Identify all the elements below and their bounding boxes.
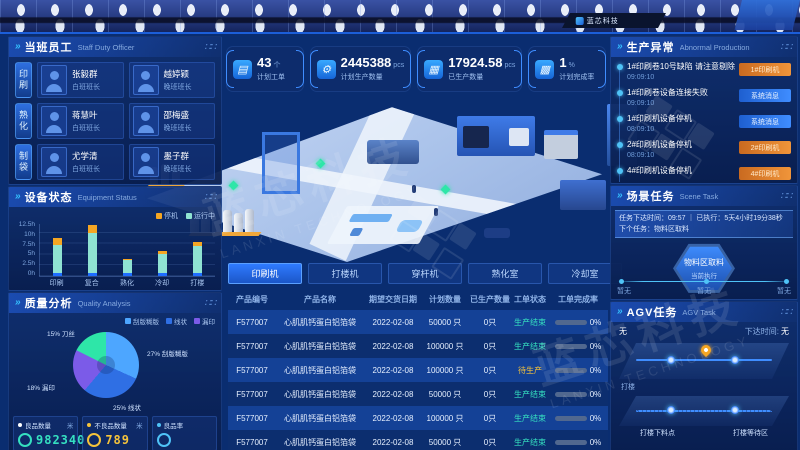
timeline-dot [619, 279, 624, 284]
avatar [41, 147, 67, 177]
staff-name: 越婷颖 [164, 68, 192, 80]
stat-dot [87, 423, 91, 427]
staff-card: 张毅群 白班班长 [37, 62, 124, 98]
machine-3d [560, 180, 606, 210]
abnormal-production-panel: 生产异常 Abnormal Production 1#印刷卷10号缺陷 请注意剔… [610, 36, 798, 184]
legend-swatch [194, 318, 200, 324]
gear-icon: ⚙ [317, 60, 336, 79]
abnormal-item[interactable]: 2#印刷机设备停机 08:09:10 2#印刷机 [627, 139, 793, 164]
staff-grid: 印刷 张毅群 白班班长 越婷颖 晚班班长 熟化 蒋慧叶 白班班长 [9, 57, 221, 185]
avatar [41, 65, 67, 95]
factory-photo-machine [735, 0, 800, 30]
pie-chart-legend: 刮版糊版 线状 漏印 [9, 313, 221, 326]
table-row[interactable]: F577007心肌肌钙蛋白铝箔袋2022-02-08100000 只0只待生产 … [228, 358, 608, 382]
yield-rate-card: 良品率 [152, 416, 217, 450]
agv-status-row: 无 下达时间:无 [611, 322, 797, 339]
station-label: 打楼下料点 [640, 428, 675, 438]
scene-task-panel: 场景任务 Scene Task 任务下达时间：09:57 ｜ 已执行：5天4小时… [610, 185, 798, 300]
avatar [133, 106, 159, 136]
progress-bar [555, 392, 587, 397]
bar-熟化[interactable] [123, 224, 132, 276]
issue-time-label: 下达时间: [745, 327, 779, 336]
tab-dalou-machine[interactable]: 打楼机 [308, 263, 382, 284]
progress-bar [555, 440, 587, 445]
staff-name: 张毅群 [72, 68, 100, 80]
agv-task-header: AGV任务 AGV Task [611, 302, 797, 322]
quality-stats: 良品数量 米 982340 不良品数量 米 789 良品率 [9, 414, 221, 450]
good-qty-card: 良品数量 米 982340 [13, 416, 78, 450]
target-ring-icon [87, 433, 101, 447]
panel-subtitle: Abnormal Production [680, 43, 781, 52]
staff-card: 邵梅盛 晚班班长 [129, 103, 216, 139]
boxes-icon: ▦ [424, 60, 443, 79]
clipboard-icon: ▤ [233, 60, 252, 79]
boxes-percent-icon: ▩ [535, 60, 554, 79]
agv-status-value: 无 [619, 326, 627, 337]
table-row[interactable]: F577007心肌肌钙蛋白铝箔袋2022-02-0850000 只0只生产结束 … [228, 310, 608, 334]
equipment-status-panel: 设备状态 Equipment Status 停机 运行中 12.5h 10h 7… [8, 186, 222, 291]
table-row[interactable]: F577007心肌肌钙蛋白铝箔袋2022-02-08100000 只0只生产结束… [228, 334, 608, 358]
process-tag: 制袋 [15, 144, 32, 180]
kpi-completion-rate: ▩ 1% 计划完成率 [528, 46, 606, 92]
quality-panel-header: 质量分析 Quality Analysis [9, 293, 221, 313]
process-tag: 熟化 [15, 103, 32, 139]
task-name: 物料区取料 [684, 257, 724, 268]
track-dot [731, 356, 739, 364]
pie[interactable] [73, 332, 139, 398]
panel-subtitle: Equipment Status [78, 193, 205, 202]
bar-打楼[interactable] [193, 224, 202, 276]
bar-复合[interactable] [88, 224, 97, 276]
agv-location-pin-icon [699, 343, 713, 357]
kpi-row: ▤ 43个 计划工单 ⚙ 2445388pcs 计划生产数量 ▦ 17924.5… [226, 46, 606, 92]
roller-machine-3d [367, 140, 419, 164]
timeline-dot [704, 279, 709, 284]
track-dot [731, 406, 739, 414]
panel-subtitle: Scene Task [680, 192, 781, 201]
brand-logo-icon [576, 17, 584, 25]
factory-photo-banner: 蓝芯科技 [0, 0, 800, 34]
printing-machine-3d [457, 116, 535, 156]
legend-swatch [166, 318, 172, 324]
staff-name: 尤学清 [72, 150, 100, 162]
bar-印刷[interactable] [53, 224, 62, 276]
legend-item[interactable]: 线状 [166, 316, 187, 326]
abnormal-list: 1#印刷卷10号缺陷 请注意剔除 09:09:10 1#印刷机 1#印刷卷设备连… [611, 57, 797, 184]
abnormal-panel-header: 生产异常 Abnormal Production [611, 37, 797, 57]
agv-task-panel: AGV任务 AGV Task 无 下达时间:无 打楼 打楼下料点 打楼等待区 [610, 301, 798, 450]
panel-title: 质量分析 [25, 295, 73, 311]
kpi-planned-qty: ⚙ 2445388pcs 计划生产数量 [310, 46, 412, 92]
machine-tag: 2#印刷机 [739, 141, 791, 154]
tab-rod-machine[interactable]: 穿杆机 [388, 263, 462, 284]
agv-route-label: 打楼 [611, 379, 797, 392]
task-timeline: 暂无 暂无 暂无 [617, 277, 791, 295]
avatar [133, 147, 159, 177]
check-ring-icon [18, 433, 32, 447]
worker-figure-3d [434, 208, 438, 216]
panel-menu-icon[interactable] [780, 191, 791, 202]
agv-vehicle-3d [484, 228, 510, 238]
legend-swatch [125, 318, 131, 324]
panel-menu-icon[interactable] [204, 298, 215, 309]
staff-panel-header: 当班员工 Staff Duty Officer [9, 37, 221, 57]
system-tag: 系统消息 [739, 89, 791, 102]
chevrons-icon [15, 192, 21, 202]
staff-row: 印刷 张毅群 白班班长 越婷颖 晚班班长 [15, 62, 215, 98]
chevrons-icon [15, 298, 21, 308]
chevrons-icon [617, 307, 623, 317]
machine-tag: 1#印刷机 [739, 63, 791, 76]
stat-dot [18, 423, 22, 427]
stat-dot [157, 423, 161, 427]
chevrons-icon [617, 42, 623, 52]
panel-title: AGV任务 [627, 304, 678, 320]
brand-logo: 蓝芯科技 [562, 13, 666, 28]
panel-subtitle: AGV Task [682, 308, 780, 317]
legend-item[interactable]: 漏印 [194, 316, 215, 326]
equipment-panel-header: 设备状态 Equipment Status [9, 187, 221, 207]
staff-card: 越婷颖 晚班班长 [129, 62, 216, 98]
timeline-dot [784, 279, 789, 284]
abnormal-item[interactable]: 4#印刷机设备停机 4#印刷机 [627, 165, 793, 184]
progress-bar [555, 344, 587, 349]
pie-label: 15% 刀丝 [47, 328, 75, 338]
process-tag: 印刷 [15, 62, 32, 98]
tab-printing-machine[interactable]: 印刷机 [228, 263, 302, 284]
machine-tabs: 印刷机 打楼机 穿杆机 熟化室 冷却室 [228, 263, 622, 284]
table-row[interactable]: F577007心肌肌钙蛋白铝箔袋2022-02-0850000 只0只生产结束 … [228, 430, 608, 450]
pie-label: 27% 刮版糊版 [147, 348, 188, 358]
staff-row: 制袋 尤学清 白班班长 墨子群 晚班班长 [15, 144, 215, 180]
chevrons-icon [617, 191, 623, 201]
avatar [133, 65, 159, 95]
station-label: 打楼等待区 [733, 428, 768, 438]
bar-冷却[interactable] [158, 224, 167, 276]
legend-swatch [156, 213, 162, 219]
tab-curing-room[interactable]: 熟化室 [468, 263, 542, 284]
progress-bar [555, 416, 587, 421]
progress-bar [555, 320, 587, 325]
panel-subtitle: Staff Duty Officer [78, 43, 205, 52]
worker-figure-3d [412, 185, 416, 193]
bar-chart-legend: 停机 运行中 [156, 211, 215, 221]
staff-panel: 当班员工 Staff Duty Officer 印刷 张毅群 白班班长 越婷颖 … [8, 36, 222, 185]
track-line [636, 359, 772, 361]
agv-track-current [619, 343, 789, 379]
good-qty-value: 982340 [36, 433, 85, 447]
panel-subtitle: Quality Analysis [78, 299, 205, 308]
legend-swatch [186, 213, 192, 219]
winder-machine-3d [544, 130, 578, 159]
agv-stations: 打楼下料点 打楼等待区 [611, 428, 797, 438]
staff-card: 尤学清 白班班长 [37, 144, 124, 180]
machine-tag: 4#印刷机 [739, 167, 791, 180]
panel-menu-icon[interactable] [780, 307, 791, 318]
staff-name: 墨子群 [164, 150, 192, 162]
track-line-dashed [636, 410, 772, 412]
task-info-bar: 任务下达时间：09:57 ｜ 已执行：5天4小时19分38秒 下个任务：物料区取… [615, 210, 793, 238]
quality-pie-chart: 15% 刀丝 27% 刮版糊版 18% 漏印 25% 线状 [9, 326, 221, 414]
frame-machine-3d [262, 132, 300, 194]
worksheet-table: 产品编号 产品名称 期望交货日期 计划数量 已生产数量 工单状态 工单完成率 F… [228, 288, 608, 450]
legend-item[interactable]: 刮版糊版 [125, 316, 159, 326]
staff-role: 晚班班长 [164, 82, 192, 92]
system-tag: 系统消息 [739, 115, 791, 128]
avatar [41, 106, 67, 136]
staff-name: 邵梅盛 [164, 109, 192, 121]
staff-role: 白班班长 [72, 123, 100, 133]
table-row[interactable]: F577007心肌肌钙蛋白铝箔袋2022-02-08100000 只0只生产结束… [228, 406, 608, 430]
abnormal-item[interactable]: 1#印刷机设备停机 08:09:10 系统消息 [627, 113, 793, 138]
staff-role: 晚班班长 [164, 164, 192, 174]
abnormal-item[interactable]: 1#印刷卷10号缺陷 请注意剔除 09:09:10 1#印刷机 [627, 61, 793, 86]
quality-analysis-panel: 质量分析 Quality Analysis 刮版糊版 线状 漏印 15% 刀丝 … [8, 292, 222, 450]
office-area-3d [327, 206, 439, 244]
x-axis: 印刷 复合 熟化 冷却 打楼 [39, 278, 215, 288]
staff-role: 晚班班长 [164, 123, 192, 133]
defect-qty-card: 不良品数量 米 789 [82, 416, 147, 450]
bar-plot-area [39, 224, 215, 277]
progress-bar [555, 368, 587, 373]
staff-row: 熟化 蒋慧叶 白班班长 邵梅盛 晚班班长 [15, 103, 215, 139]
kpi-planned-orders: ▤ 43个 计划工单 [226, 46, 304, 92]
brand-logo-text: 蓝芯科技 [587, 16, 619, 26]
staff-role: 白班班长 [72, 164, 100, 174]
table-header-row: 产品编号 产品名称 期望交货日期 计划数量 已生产数量 工单状态 工单完成率 [228, 288, 608, 310]
panel-menu-icon[interactable] [780, 42, 791, 53]
table-row[interactable]: F577007心肌肌钙蛋白铝箔袋2022-02-0850000 只0只生产结束 … [228, 382, 608, 406]
staff-role: 白班班长 [72, 82, 100, 92]
panel-title: 生产异常 [627, 39, 675, 55]
panel-title: 设备状态 [25, 189, 73, 205]
defect-qty-value: 789 [105, 433, 130, 447]
track-dot [667, 406, 675, 414]
agv-track-route [619, 396, 789, 426]
equipment-bar-chart: 12.5h 10h 7.5h 5h 2.5h 0h 印刷 复合 熟化 冷却 打楼 [13, 221, 217, 288]
staff-card: 蒋慧叶 白班班长 [37, 103, 124, 139]
chevrons-icon [15, 42, 21, 52]
staff-card: 墨子群 晚班班长 [129, 144, 216, 180]
dashboard: 蓝芯科技 蓝芯科技 LANXIN TECHNOLOGY 蓝芯科技 LANXIN … [0, 0, 800, 450]
staff-name: 蒋慧叶 [72, 109, 100, 121]
legend-item[interactable]: 运行中 [186, 211, 215, 221]
panel-title: 当班员工 [25, 39, 73, 55]
panel-menu-icon[interactable] [204, 192, 215, 203]
y-axis: 12.5h 10h 7.5h 5h 2.5h 0h [13, 221, 35, 277]
issue-time-value: 无 [781, 327, 789, 336]
track-dot [667, 356, 675, 364]
pie-label: 18% 漏印 [27, 382, 55, 392]
panel-title: 场景任务 [627, 188, 675, 204]
kpi-produced-qty: ▦ 17924.58pcs 已生产数量 [417, 46, 522, 92]
scene-task-header: 场景任务 Scene Task [611, 186, 797, 206]
pie-label: 25% 线状 [113, 402, 141, 412]
panel-menu-icon[interactable] [204, 42, 215, 53]
legend-item[interactable]: 停机 [156, 211, 178, 221]
gauge-ring-icon [157, 433, 171, 447]
abnormal-item[interactable]: 1#印刷卷设备连接失败 09:09:10 系统消息 [627, 87, 793, 112]
